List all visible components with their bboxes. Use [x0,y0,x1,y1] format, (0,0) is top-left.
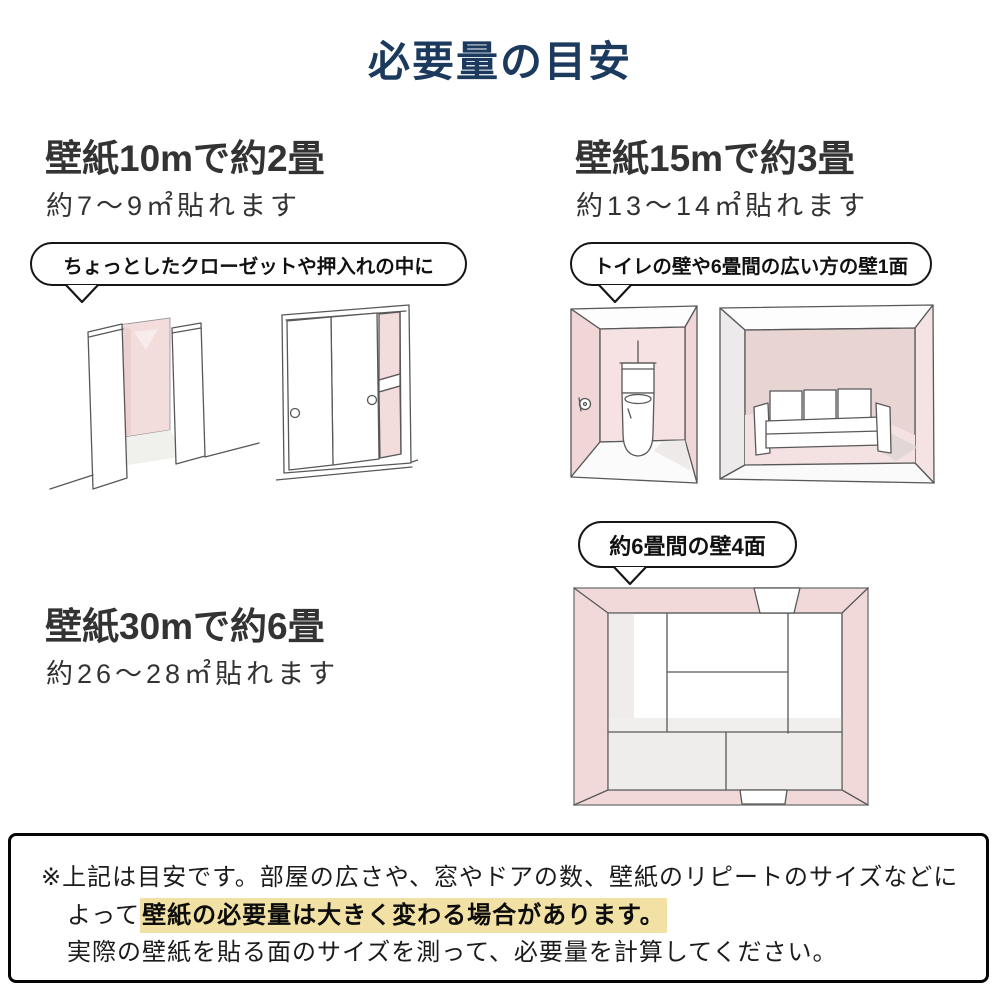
speech-bubble-four-walls: 約6畳間の壁4面 [578,521,797,568]
speech-bubble-tail [64,284,100,305]
notice-line-1-text: ※上記は目安です。部屋の広さや、窓やドアの数、壁紙のリピートのサイズなどに [41,864,958,891]
section-15m-subtext: 約13〜14㎡貼れます [576,184,869,223]
notice-line-3-text: 実際の壁紙を貼る面のサイズを測って、必要量を計算してください。 [67,939,837,966]
open-closet-illustration [48,298,260,493]
notice-line-2: よって壁紙の必要量は大きく変わる場合があります。 [67,897,986,935]
section-30m-subtext: 約26〜28㎡貼れます [46,652,339,691]
wallpaper-quantity-guide-page: 必要量の目安 壁紙10mで約2畳 約7〜9㎡貼れます ちょっとしたクローゼットや… [0,0,1000,1000]
speech-bubble-toilet-label: トイレの壁や6畳間の広い方の壁1面 [594,250,908,279]
speech-bubble-tail [597,284,633,305]
section-10m-subtext: 約7〜9㎡貼れます [46,184,301,223]
section-10m-heading: 壁紙10mで約2畳 [45,128,325,182]
section-15m-heading: 壁紙15mで約3畳 [575,128,855,182]
notice-box: ※上記は目安です。部屋の広さや、窓やドアの数、壁紙のリピートのサイズなどに よっ… [8,833,989,983]
speech-bubble-closet-label: ちょっとしたクローゼットや押入れの中に [63,250,434,279]
sliding-door-closet-illustration [276,301,418,489]
notice-line-2-prefix: よって [67,902,140,929]
six-mat-room-top-view-illustration [571,585,871,809]
page-title: 必要量の目安 [0,28,1000,89]
notice-line-3: 実際の壁紙を貼る面のサイズを測って、必要量を計算してください。 [67,934,986,972]
speech-bubble-closet: ちょっとしたクローゼットや押入れの中に [30,242,467,286]
speech-bubble-toilet: トイレの壁や6畳間の広い方の壁1面 [570,242,932,286]
section-30m-heading: 壁紙30mで約6畳 [45,596,325,650]
six-mat-room-illustration [718,303,936,487]
notice-line-2-highlight: 壁紙の必要量は大きく変わる場合があります。 [140,898,667,933]
notice-line-1: ※上記は目安です。部屋の広さや、窓やドアの数、壁紙のリピートのサイズなどに [41,859,986,897]
toilet-room-illustration [568,303,702,487]
speech-bubble-four-walls-label: 約6畳間の壁4面 [609,529,765,561]
speech-bubble-tail [612,566,648,587]
